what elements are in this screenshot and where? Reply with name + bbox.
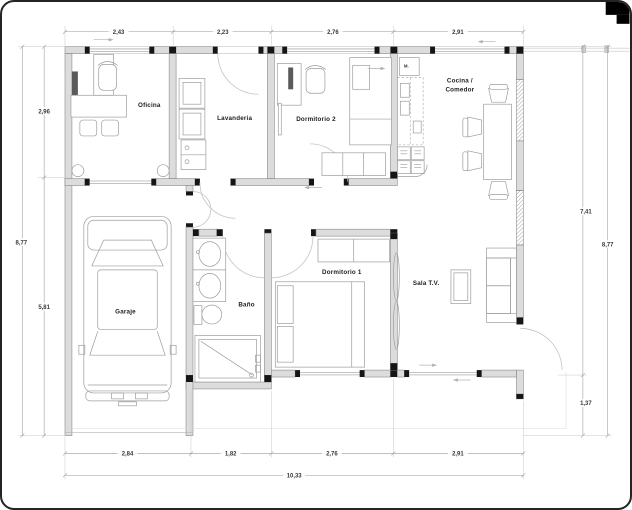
room-label-dormitorio2: Dormitorio 2 <box>296 116 336 123</box>
dim-top-4: 2,91 <box>452 30 464 36</box>
stove-burners <box>397 147 424 174</box>
bedroom1-furniture <box>275 239 389 367</box>
dim-right-2: 1,37 <box>580 401 592 407</box>
room-label-lavanderia: Lavanderia <box>217 115 252 122</box>
room-label-oficina: Oficina <box>138 102 161 109</box>
dim-bottom-4: 2,91 <box>452 452 464 458</box>
room-label-dormitorio1: Dormitorio 1 <box>322 269 362 276</box>
dim-bottom-3: 2,76 <box>326 452 338 458</box>
living-room-furniture <box>393 248 516 349</box>
dim-top-2: 2,23 <box>217 30 229 36</box>
room-label-sala: Sala T.V. <box>413 280 440 287</box>
dim-right-total: 8,77 <box>602 242 614 248</box>
floor-plan-drawing: M. <box>2 2 630 508</box>
room-label-bano: Baño <box>238 302 254 309</box>
kitchen-counter: M. <box>397 58 427 177</box>
dim-bottom-2: 1,82 <box>225 452 237 458</box>
room-label-cocina-line1: Cocina / <box>447 77 473 84</box>
dim-left-1: 2,96 <box>38 109 50 115</box>
office-furniture <box>71 55 169 177</box>
room-label-garaje: Garaje <box>115 309 136 316</box>
room-label-cocina-line2: Comedor <box>445 86 474 93</box>
dim-top-3: 2,76 <box>327 30 339 36</box>
dim-bottom-total: 10,33 <box>287 474 303 480</box>
laundry-furniture <box>179 78 206 169</box>
dim-right-1: 7,41 <box>580 210 592 216</box>
dim-bottom-1: 2,84 <box>122 452 134 458</box>
floor-plan-sheet: M. <box>0 0 632 510</box>
dim-left-total: 8,77 <box>16 240 28 246</box>
garage-car <box>65 216 193 432</box>
dim-top-1: 2,43 <box>113 30 125 36</box>
room-labels: Oficina Lavanderia Dormitorio 2 Cocina /… <box>104 77 475 315</box>
corner-mark <box>606 2 630 15</box>
dining-set <box>463 84 512 199</box>
dim-left-2: 5,81 <box>38 305 50 311</box>
bathroom-fixtures <box>193 238 260 382</box>
windows-and-entries <box>85 47 510 54</box>
kitchen-appliance-label: M. <box>404 63 409 68</box>
